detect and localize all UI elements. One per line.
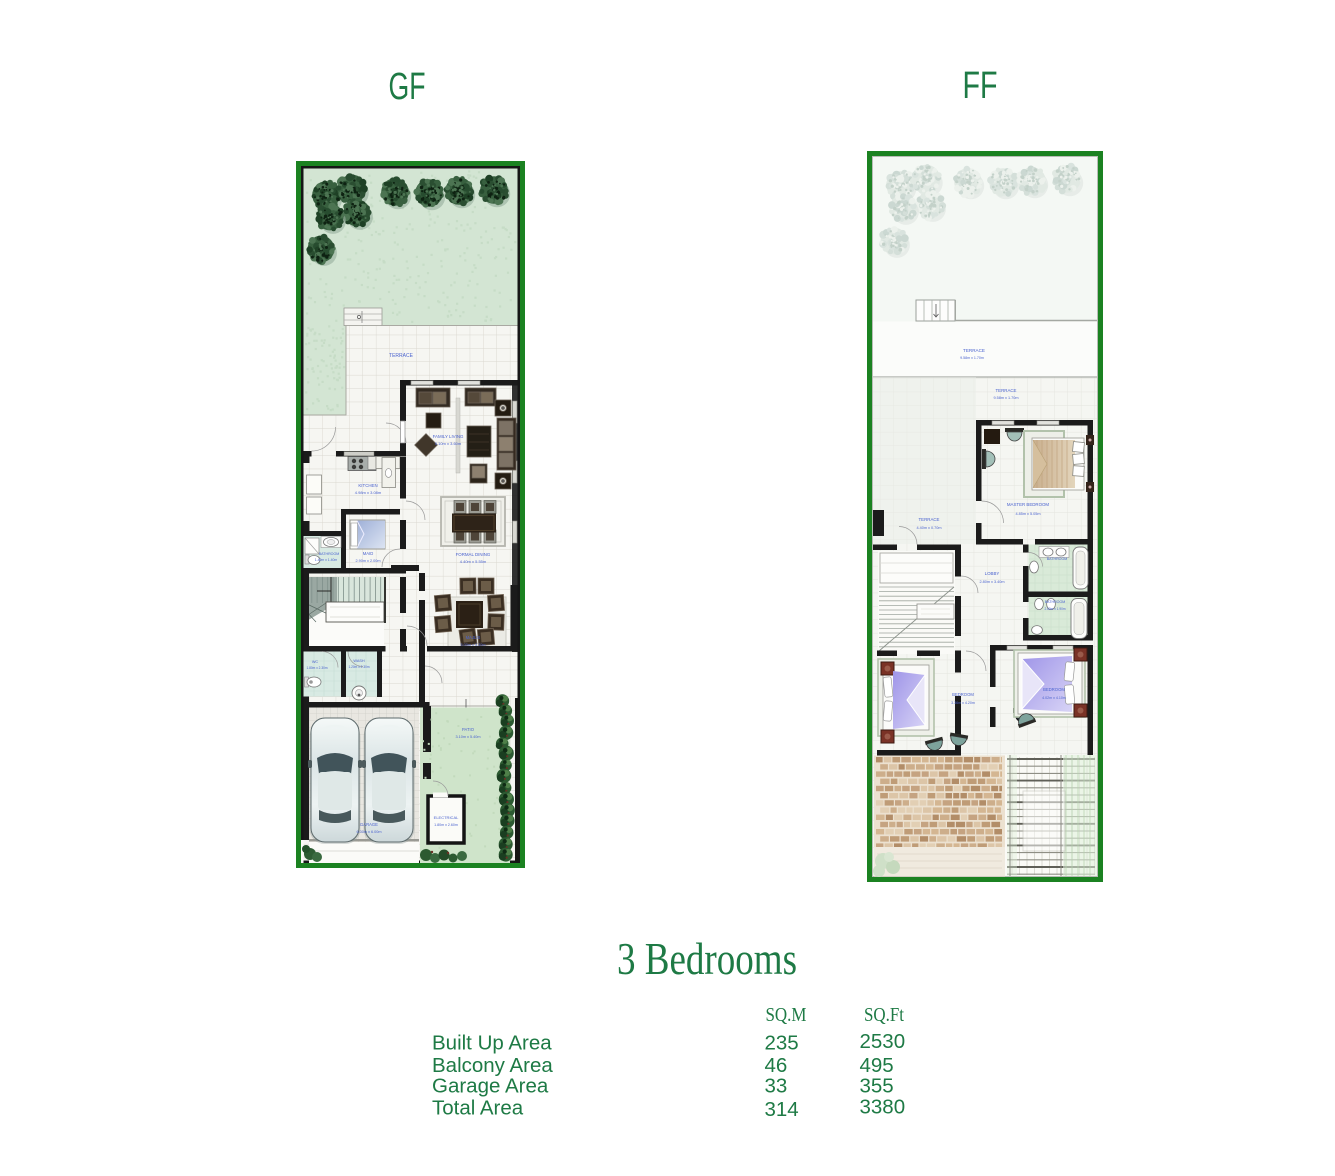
svg-text:BEDROOM: BEDROOM bbox=[1043, 687, 1065, 692]
svg-text:1.80m x 2.60m: 1.80m x 2.60m bbox=[434, 823, 458, 827]
svg-text:GF: GF bbox=[389, 66, 426, 108]
svg-text:MASTER BEDROOM: MASTER BEDROOM bbox=[1007, 502, 1050, 507]
svg-text:3.10m x 5.40m: 3.10m x 5.40m bbox=[455, 735, 480, 739]
svg-text:TERRACE: TERRACE bbox=[963, 348, 985, 353]
svg-text:9.58m x 1.70m: 9.58m x 1.70m bbox=[960, 356, 984, 360]
svg-text:2.90m x 2.00m: 2.90m x 2.00m bbox=[355, 559, 380, 563]
svg-text:33: 33 bbox=[765, 1075, 788, 1098]
svg-text:9.58m x 1.70m: 9.58m x 1.70m bbox=[993, 396, 1018, 400]
svg-text:Total Area: Total Area bbox=[432, 1097, 524, 1120]
svg-text:2.80m x 3.40m: 2.80m x 3.40m bbox=[979, 580, 1004, 584]
svg-text:TERRACE: TERRACE bbox=[996, 388, 1017, 393]
svg-text:1.40m x 1.40m: 1.40m x 1.40m bbox=[315, 558, 338, 562]
svg-text:TERRACE: TERRACE bbox=[919, 517, 940, 522]
svg-text:MAJLIS: MAJLIS bbox=[466, 635, 481, 640]
svg-text:4.98m x 3.08m: 4.98m x 3.08m bbox=[355, 490, 382, 495]
svg-text:235: 235 bbox=[765, 1032, 799, 1055]
svg-text:2530: 2530 bbox=[860, 1030, 906, 1053]
svg-text:BATHROOM: BATHROOM bbox=[319, 552, 340, 556]
svg-text:6.00m x 6.00m: 6.00m x 6.00m bbox=[356, 830, 381, 834]
svg-text:2.60m x 1.90m: 2.60m x 1.90m bbox=[1044, 607, 1065, 611]
svg-text:TERRACE: TERRACE bbox=[389, 353, 414, 359]
svg-text:GARAGE: GARAGE bbox=[360, 822, 378, 827]
svg-text:Garage Area: Garage Area bbox=[432, 1075, 549, 1098]
svg-text:SQ.M: SQ.M bbox=[766, 1004, 807, 1026]
svg-text:FF: FF bbox=[963, 65, 998, 107]
svg-text:BATHROOM: BATHROOM bbox=[1045, 600, 1066, 604]
svg-text:3.36m x 4.20m: 3.36m x 4.20m bbox=[951, 701, 975, 705]
svg-text:3380: 3380 bbox=[860, 1096, 906, 1119]
svg-text:4.40m x 5.55m: 4.40m x 5.55m bbox=[460, 559, 487, 564]
svg-text:KITCHEN: KITCHEN bbox=[358, 483, 377, 488]
svg-text:Built Up Area: Built Up Area bbox=[432, 1032, 552, 1055]
svg-text:3 Bedrooms: 3 Bedrooms bbox=[617, 933, 797, 984]
svg-text:4.40m x 0.70m: 4.40m x 0.70m bbox=[916, 526, 941, 530]
svg-text:1.80m x 2.30m: 1.80m x 2.30m bbox=[306, 666, 327, 670]
svg-text:4.85m x 5.05m: 4.85m x 5.05m bbox=[1015, 512, 1040, 516]
svg-text:1.20m x 2.30m: 1.20m x 2.30m bbox=[348, 665, 369, 669]
svg-text:BATHROOM: BATHROOM bbox=[1047, 557, 1068, 561]
svg-text:5.00m x 3.30m: 5.00m x 3.30m bbox=[460, 643, 485, 647]
svg-text:FAMILY LIVING: FAMILY LIVING bbox=[433, 434, 464, 439]
svg-text:5.10m x 3.60m: 5.10m x 3.60m bbox=[435, 441, 462, 446]
svg-text:355: 355 bbox=[860, 1075, 894, 1098]
svg-text:WC: WC bbox=[312, 660, 319, 664]
svg-text:LOBBY: LOBBY bbox=[985, 571, 1000, 576]
svg-text:4.02m x 4.10m: 4.02m x 4.10m bbox=[1042, 696, 1066, 700]
svg-text:BEDROOM: BEDROOM bbox=[952, 692, 974, 697]
svg-text:314: 314 bbox=[765, 1098, 799, 1121]
svg-text:ELECTRICAL: ELECTRICAL bbox=[434, 815, 459, 820]
svg-text:WASH: WASH bbox=[353, 659, 365, 663]
svg-text:SQ.Ft: SQ.Ft bbox=[864, 1004, 904, 1026]
svg-text:PATIO: PATIO bbox=[462, 727, 475, 732]
svg-text:MAID: MAID bbox=[363, 551, 373, 556]
svg-text:FORMAL DINING: FORMAL DINING bbox=[456, 552, 491, 557]
